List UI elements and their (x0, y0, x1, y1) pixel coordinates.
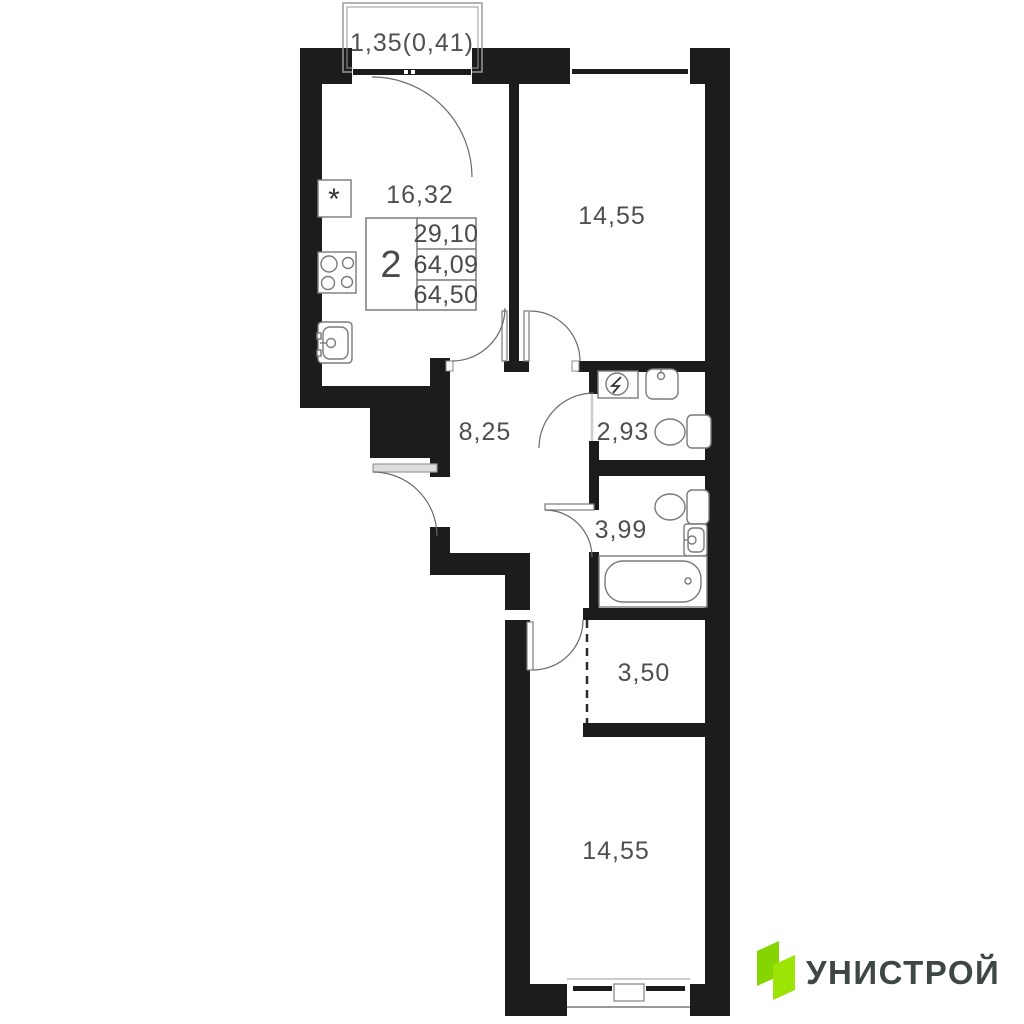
bedroom-top-door-arc (530, 311, 580, 361)
wc-sink-icon (646, 368, 678, 399)
floor-plan: 1,35(0,41) (0, 0, 1024, 1024)
wall-segment (504, 361, 529, 372)
bedroom-bottom-door-leaf (527, 622, 533, 670)
kitchen-door-arc (452, 308, 505, 361)
label-bedroom-bottom-area: 14,55 (582, 837, 650, 865)
window-glass-line (646, 986, 685, 991)
label-hallway-area: 8,25 (459, 418, 512, 446)
wall-segment (509, 84, 519, 362)
bedroom-top-door-leaf (524, 311, 529, 361)
wc-toilet-icon (655, 415, 711, 448)
developer-logo: УНИСТРОЙ (757, 941, 1000, 1000)
balcony: 1,35(0,41) (343, 3, 482, 84)
label-bedroom-top-area: 14,55 (578, 202, 646, 230)
wall-segment (505, 620, 530, 1016)
info-table: 2 29,10 64,09 64,50 (366, 218, 479, 310)
rooms-count: 2 (380, 244, 401, 286)
wall-segment (300, 386, 433, 408)
window-bottom-bedroom (567, 978, 690, 1008)
wall-segment (583, 608, 707, 620)
floor-plan-page: 1,35(0,41) (0, 0, 1024, 1024)
window-vent-box (614, 984, 644, 1001)
logo-brand-text: УНИСТРОЙ (806, 953, 1000, 991)
total-area: 64,50 (413, 281, 478, 309)
wall-segment (589, 460, 707, 476)
wall-segment (472, 48, 570, 84)
walls (300, 48, 730, 1016)
window-top-bedroom (570, 48, 690, 84)
bedroom-bottom-door-arc (533, 620, 583, 670)
wall-segment (589, 552, 599, 608)
stove-icon (318, 252, 356, 293)
wall-segment (583, 723, 707, 737)
window-tick (411, 70, 415, 74)
wall-segment (370, 406, 433, 458)
doors (372, 77, 594, 670)
wall-segment (690, 984, 730, 1016)
label-wardrobe-area: 3,50 (618, 659, 671, 687)
fridge-mark: * (328, 183, 340, 216)
label-kitchen-area: 16,32 (386, 181, 454, 209)
kitchen-sink-icon (317, 322, 352, 363)
bathroom-door-leaf (545, 504, 594, 510)
entrance-door-leaf (373, 464, 437, 472)
living-area: 29,10 (413, 220, 478, 248)
bathtub-icon (599, 556, 707, 607)
wc-door-arc (539, 393, 594, 448)
wall-segment (705, 48, 730, 1016)
entrance-door-arc (373, 472, 437, 536)
threshold-cap (446, 361, 453, 371)
label-wc-area: 2,93 (597, 418, 650, 446)
door-openings (430, 361, 579, 620)
window-glass-line (573, 986, 612, 991)
bathroom-toilet-icon (655, 490, 709, 524)
window-glass-line (572, 69, 688, 74)
wall-segment (430, 358, 450, 477)
label-bathroom-area: 3,99 (595, 516, 648, 544)
balcony-door-arc (372, 77, 472, 177)
threshold-cap (572, 361, 579, 371)
doorframe-gap (505, 610, 530, 620)
bathroom-door-arc (545, 510, 592, 557)
fridge-icon: * (318, 180, 351, 217)
window-recess (570, 48, 690, 84)
area-no-balcony: 64,09 (413, 251, 478, 279)
wall-segment (505, 553, 530, 610)
electrical-panel-icon (598, 371, 638, 398)
window-tick (404, 70, 408, 74)
bathroom-sink-icon (684, 524, 707, 556)
entrance-opening (430, 477, 450, 527)
label-balcony-area: 1,35(0,41) (350, 29, 474, 57)
